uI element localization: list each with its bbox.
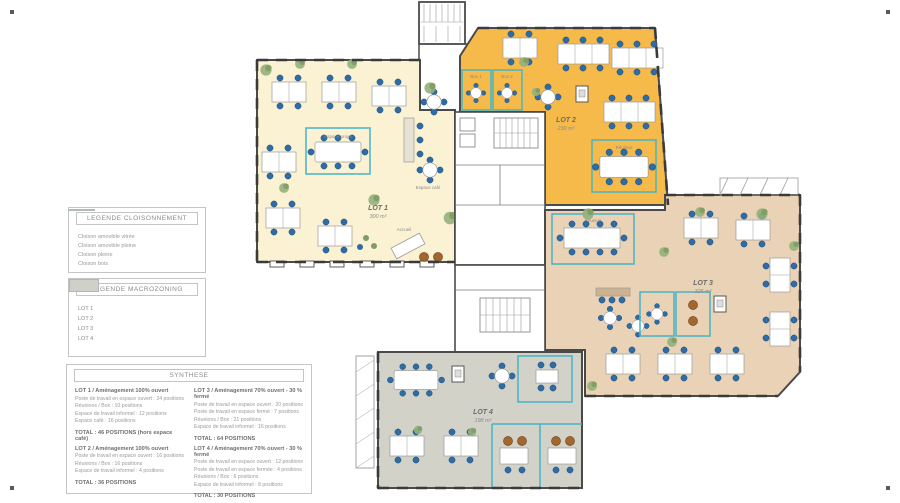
legend-item-label: Cloison amovible vitrée xyxy=(78,234,135,240)
synthese-lot1-title: LOT 1 / Aménagement 100% ouvert xyxy=(75,388,184,394)
accueil-label: Accueil xyxy=(397,227,412,232)
synthese-line: Réunions / Box : 10 positions xyxy=(75,403,184,411)
macrozoning-item-label: LOT 1 xyxy=(78,306,93,312)
synthese-line: Poste de travail en espace ouvert : 20 p… xyxy=(194,402,303,410)
legend-item-cloison-pleine: Cloison pleine xyxy=(78,252,196,258)
synthese-lot3-total: TOTAL : 64 POSITIONS xyxy=(194,436,303,442)
synthese-line: Poste de travail en espace fermé : 7 pos… xyxy=(194,409,303,417)
synthese-lot4-title: LOT 4 / Aménagement 70% ouvert - 30 % fe… xyxy=(194,446,303,458)
synthese-lot3-title: LOT 3 / Aménagement 70% ouvert - 30 % fe… xyxy=(194,388,303,400)
macrozoning-item-lot2: LOT 2 xyxy=(78,316,196,322)
macrozoning-item-lot1: LOT 1 xyxy=(78,306,196,312)
lot2-label: LOT 2 xyxy=(556,117,576,124)
synthese-lot2-total: TOTAL : 36 POSITIONS xyxy=(75,480,184,486)
synthese-title: SYNTHESE xyxy=(74,369,304,382)
legend-item-cloison-vitree: Cloison amovible vitrée xyxy=(78,234,196,240)
synthese-line: Espace de travail informel : 4 positions xyxy=(75,468,184,476)
macrozoning-item-label: LOT 3 xyxy=(78,326,93,332)
synthese-line: Espace de travail informel : 16 position… xyxy=(194,424,303,432)
synthese-line: Poste de travail en espace ouvert : 24 p… xyxy=(75,396,184,404)
synthese-line: Poste de travail en espace ouvert : 16 p… xyxy=(75,453,184,461)
synthese-line: Espace café : 16 positions xyxy=(75,418,184,426)
macrozoning-item-label: LOT 2 xyxy=(78,316,93,322)
synthese-line: Poste de travail en espace ouvert : 12 p… xyxy=(194,459,303,467)
lot1-label: LOT 1 xyxy=(368,205,388,212)
lot3-label: LOT 3 xyxy=(693,280,713,287)
core-stairs-2 xyxy=(455,265,545,352)
box2-label: Box 2 xyxy=(501,74,513,79)
macrozoning-item-label: LOT 4 xyxy=(78,336,93,342)
synthese-line: Poste de travail en espace fermée : 4 po… xyxy=(194,467,303,475)
lot2-meeting-label: Réunion xyxy=(616,145,633,150)
synthese-line: Réunions / Box : 16 positions xyxy=(75,461,184,469)
espace-projet-label: Espace projet xyxy=(324,134,352,139)
espace-cafe-label: Espace café xyxy=(416,185,441,190)
legend-cloisonnement: LEGENDE CLOISONNEMENT Cloison amovible v… xyxy=(68,207,206,273)
synthese-lot1: LOT 1 / Aménagement 100% ouvert Poste de… xyxy=(75,388,184,442)
lot2-area-label: 230 m² xyxy=(556,126,574,132)
synthese-line: Réunions / Box : 6 positions xyxy=(194,474,303,482)
synthese-lot1-total: TOTAL : 46 POSITIONS (hors espace café) xyxy=(75,430,184,442)
lot4-area-label: 198 m² xyxy=(474,418,491,424)
legend-cloisonnement-title: LEGENDE CLOISONNEMENT xyxy=(76,212,198,225)
box1-label: Box 1 xyxy=(470,74,482,79)
lot4-terrace xyxy=(356,356,374,468)
lot1-area-label: 300 m² xyxy=(369,214,386,220)
color-swatch xyxy=(69,279,99,292)
synthese-line: Réunions / Box : 21 positions xyxy=(194,417,303,425)
synthese-lot4: LOT 4 / Aménagement 70% ouvert - 30 % fe… xyxy=(194,446,303,500)
lot3-area-label: 325 m² xyxy=(694,289,711,295)
terrace-top-right xyxy=(720,178,798,195)
legend-item-label: Cloison pleine xyxy=(78,252,113,258)
macrozoning-item-lot4: LOT 4 xyxy=(78,336,196,342)
synthese-lot2: LOT 2 / Aménagement 100% ouvert Poste de… xyxy=(75,446,184,500)
legend-item-label: Cloison bois xyxy=(78,261,108,267)
legend-item-cloison-bois: Cloison bois xyxy=(78,261,196,267)
macrozoning-item-lot3: LOT 3 xyxy=(78,326,196,332)
lot4-label: LOT 4 xyxy=(473,409,493,416)
core-stairs-1 xyxy=(455,112,545,265)
legend-item-cloison-pleine-amovible: Cloison amovible pleine xyxy=(78,243,196,249)
lot3-zone: Réunion LOT 3 325 m² xyxy=(545,178,800,396)
legend-item-label: Cloison amovible pleine xyxy=(78,243,136,249)
legend-macrozoning: LEGENDE MACROZONING LOT 1 LOT 2 LOT 3 LO… xyxy=(68,278,206,357)
synthese-panel: SYNTHESE LOT 1 / Aménagement 100% ouvert… xyxy=(66,364,312,494)
synthese-line: Espace de travail informel : 12 position… xyxy=(75,411,184,419)
synthese-lot3: LOT 3 / Aménagement 70% ouvert - 30 % fe… xyxy=(194,388,303,442)
synthese-lot4-total: TOTAL : 30 POSITIONS xyxy=(194,493,303,499)
lot4-zone: LOT 4 198 m² xyxy=(356,352,582,488)
synthese-lot2-title: LOT 2 / Aménagement 100% ouvert xyxy=(75,446,184,452)
floor-plan-page: Box 1 Box 2 Réunion LOT 2 230 m² Espace … xyxy=(0,0,900,500)
line-sample xyxy=(69,208,95,212)
lot1-zone: Espace projet Espace café Accueil LOT 1 … xyxy=(257,59,456,267)
synthese-line: Espace de travail informel : 8 positions xyxy=(194,482,303,490)
